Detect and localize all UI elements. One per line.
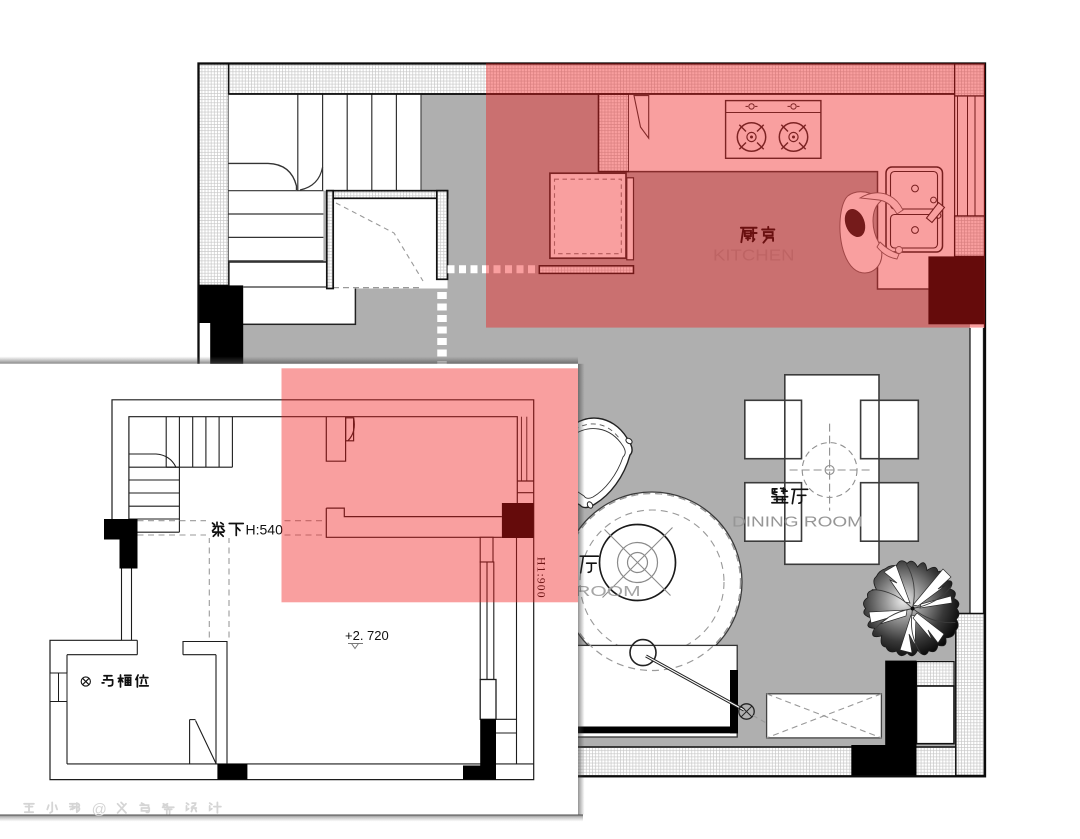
svg-text:H:540: H:540	[246, 522, 284, 538]
svg-text:DINING ROOM: DINING ROOM	[732, 514, 863, 531]
svg-text:+2. 720: +2. 720	[345, 628, 389, 643]
svg-text:@: @	[92, 801, 107, 818]
